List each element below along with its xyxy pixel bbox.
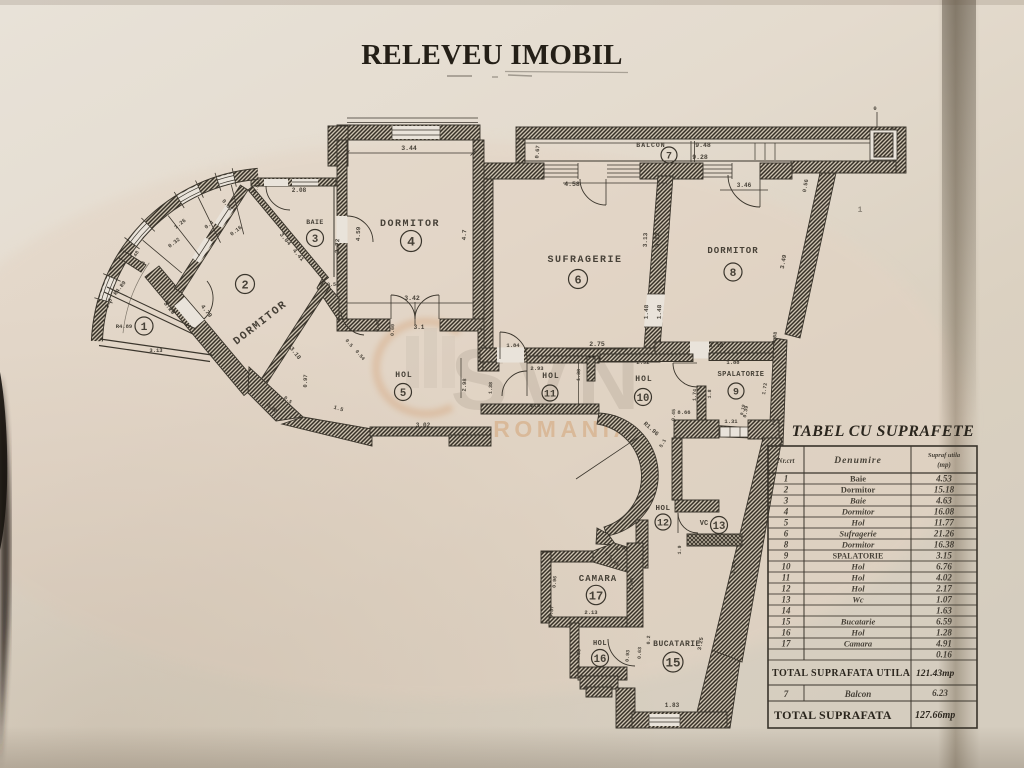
svg-text:1.48: 1.48 <box>643 304 651 319</box>
svg-text:1: 1 <box>771 420 775 427</box>
svg-text:5: 5 <box>400 388 406 400</box>
svg-text:6.23: 6.23 <box>932 688 948 698</box>
svg-text:7: 7 <box>784 689 789 699</box>
svg-text:4: 4 <box>407 235 415 250</box>
svg-text:0.96: 0.96 <box>551 576 558 588</box>
svg-text:8: 8 <box>784 540 789 550</box>
svg-text:2.98: 2.98 <box>461 378 468 392</box>
svg-text:R4.89: R4.89 <box>116 323 133 330</box>
svg-text:17: 17 <box>589 589 604 603</box>
svg-text:0.2: 0.2 <box>646 635 652 644</box>
svg-text:0: 0 <box>873 105 876 112</box>
svg-text:Hol: Hol <box>850 584 865 594</box>
svg-text:16: 16 <box>782 628 792 638</box>
svg-text:Wc: Wc <box>852 595 864 605</box>
svg-text:4.91: 4.91 <box>935 639 952 649</box>
svg-text:2.08: 2.08 <box>292 187 307 194</box>
svg-text:Bucatarie: Bucatarie <box>840 617 876 627</box>
svg-text:HOL: HOL <box>593 640 607 648</box>
svg-text:2.93: 2.93 <box>530 402 544 409</box>
svg-text:1.84: 1.84 <box>506 342 520 349</box>
svg-text:10: 10 <box>782 562 792 572</box>
svg-text:2: 2 <box>241 278 248 292</box>
svg-text:12: 12 <box>782 584 792 594</box>
svg-text:2.93: 2.93 <box>530 365 544 372</box>
svg-text:10: 10 <box>637 393 650 405</box>
svg-text:1.8: 1.8 <box>707 389 713 398</box>
svg-text:Camara: Camara <box>844 639 873 649</box>
svg-text:9.28: 9.28 <box>692 154 708 161</box>
svg-text:6: 6 <box>784 529 789 539</box>
svg-text:1.48: 1.48 <box>656 304 664 319</box>
svg-text:Baie: Baie <box>850 474 866 484</box>
svg-text:Hol: Hol <box>850 518 865 528</box>
svg-text:0.93: 0.93 <box>624 650 631 662</box>
svg-text:Dormitor: Dormitor <box>841 540 875 550</box>
svg-text:2.75: 2.75 <box>589 341 605 348</box>
svg-text:0.16: 0.16 <box>936 650 952 660</box>
svg-text:2.72: 2.72 <box>334 238 342 253</box>
svg-text:15: 15 <box>665 657 680 671</box>
svg-text:4.7: 4.7 <box>461 229 468 240</box>
svg-text:6.76: 6.76 <box>936 562 952 572</box>
svg-text:12: 12 <box>657 519 669 530</box>
svg-text:11.77: 11.77 <box>934 518 954 528</box>
svg-text:1.07: 1.07 <box>936 595 952 605</box>
svg-text:6: 6 <box>574 273 581 287</box>
svg-text:4.63: 4.63 <box>935 496 952 506</box>
svg-text:5: 5 <box>784 518 789 528</box>
svg-text:SUFRAGERIE: SUFRAGERIE <box>547 255 622 266</box>
svg-text:16: 16 <box>594 654 607 666</box>
svg-text:1.35: 1.35 <box>730 562 737 574</box>
svg-text:HOL: HOL <box>395 371 412 380</box>
svg-text:4.58: 4.58 <box>564 181 580 188</box>
svg-text:0.60: 0.60 <box>390 324 396 336</box>
svg-text:Hol: Hol <box>850 562 865 572</box>
svg-text:1.38: 1.38 <box>488 382 494 394</box>
svg-text:1.28: 1.28 <box>936 628 952 638</box>
svg-text:1.63: 1.63 <box>936 606 952 616</box>
svg-text:9.48: 9.48 <box>695 142 711 149</box>
svg-text:8.66: 8.66 <box>677 409 690 416</box>
svg-text:DORMITOR: DORMITOR <box>707 246 758 256</box>
svg-text:Dormitor: Dormitor <box>841 507 875 517</box>
svg-text:HOL: HOL <box>655 505 670 513</box>
svg-text:Nr.crt: Nr.crt <box>777 457 796 465</box>
svg-text:(mp): (mp) <box>937 461 951 469</box>
svg-text:CAMARA: CAMARA <box>579 574 617 584</box>
svg-text:1.83: 1.83 <box>665 702 680 709</box>
svg-text:3.12: 3.12 <box>709 342 724 349</box>
svg-text:HOL: HOL <box>635 375 652 384</box>
svg-text:1.95: 1.95 <box>628 578 635 590</box>
svg-text:3.13: 3.13 <box>654 232 662 247</box>
svg-text:Denumire: Denumire <box>833 456 882 466</box>
svg-text:SPALATORIE: SPALATORIE <box>717 371 764 379</box>
svg-text:127.66mp: 127.66mp <box>915 710 955 721</box>
svg-text:3.1: 3.1 <box>414 324 425 331</box>
svg-text:DORMITOR: DORMITOR <box>380 219 440 230</box>
svg-text:16.38: 16.38 <box>934 540 955 550</box>
svg-text:0.67: 0.67 <box>533 145 541 159</box>
svg-text:0.76: 0.76 <box>615 546 627 552</box>
svg-text:3.42: 3.42 <box>404 295 420 302</box>
svg-text:0.40: 0.40 <box>375 320 381 332</box>
svg-text:3.13: 3.13 <box>149 347 163 354</box>
svg-text:9: 9 <box>784 551 789 561</box>
svg-text:Balcon: Balcon <box>844 689 872 699</box>
svg-text:13: 13 <box>782 595 792 605</box>
svg-text:15.18: 15.18 <box>934 485 955 495</box>
svg-text:Sufragerie: Sufragerie <box>839 529 877 539</box>
svg-text:3.02: 3.02 <box>416 422 431 429</box>
svg-text:4.53: 4.53 <box>935 474 952 484</box>
svg-text:3: 3 <box>312 234 318 246</box>
svg-text:2.13: 2.13 <box>584 609 598 616</box>
svg-text:TOTAL SUPRAFATA UTILA: TOTAL SUPRAFATA UTILA <box>772 668 911 679</box>
svg-text:0.88: 0.88 <box>575 649 582 661</box>
svg-text:0.63: 0.63 <box>637 647 643 659</box>
svg-text:0.45: 0.45 <box>671 409 677 421</box>
svg-text:TABEL CU SUPRAFETE: TABEL CU SUPRAFETE <box>792 423 975 440</box>
svg-text:Baie: Baie <box>849 496 866 506</box>
svg-text:2.17: 2.17 <box>935 584 952 594</box>
svg-text:RELEVEU IMOBIL: RELEVEU IMOBIL <box>361 39 622 71</box>
svg-text:3.15: 3.15 <box>935 551 952 561</box>
svg-text:1.38: 1.38 <box>576 369 582 381</box>
svg-text:BAIE: BAIE <box>306 219 324 226</box>
svg-text:1: 1 <box>784 474 789 484</box>
svg-text:9: 9 <box>733 388 739 399</box>
svg-text:1: 1 <box>858 206 863 215</box>
svg-text:BALCON: BALCON <box>636 142 665 149</box>
svg-text:21.26: 21.26 <box>933 529 955 539</box>
svg-text:11: 11 <box>544 390 556 401</box>
svg-text:15: 15 <box>782 617 792 627</box>
svg-text:8: 8 <box>730 268 737 280</box>
svg-text:13: 13 <box>713 521 726 533</box>
svg-text:4.02: 4.02 <box>935 573 952 583</box>
svg-text:3.44: 3.44 <box>401 145 417 152</box>
svg-text:7: 7 <box>666 152 672 163</box>
svg-text:17: 17 <box>782 639 792 649</box>
svg-text:3.46: 3.46 <box>737 182 752 189</box>
svg-text:Hol: Hol <box>850 573 865 583</box>
svg-text:14: 14 <box>782 606 792 616</box>
svg-text:BUCATARIE: BUCATARIE <box>653 640 701 649</box>
svg-text:3.13: 3.13 <box>642 232 650 247</box>
svg-text:0.97: 0.97 <box>302 374 309 387</box>
svg-text:Dormitor: Dormitor <box>841 485 876 495</box>
svg-text:HOL: HOL <box>542 372 559 381</box>
svg-text:16.08: 16.08 <box>934 507 955 517</box>
svg-text:4.59: 4.59 <box>355 226 363 241</box>
svg-text:Hol: Hol <box>850 628 865 638</box>
svg-text:SPALATORIE: SPALATORIE <box>833 552 884 561</box>
svg-text:6.59: 6.59 <box>936 617 952 627</box>
svg-text:3: 3 <box>783 496 789 506</box>
svg-text:1.9: 1.9 <box>677 545 683 554</box>
svg-text:2: 2 <box>783 485 789 495</box>
svg-text:4: 4 <box>783 507 789 517</box>
svg-text:VC: VC <box>700 520 708 528</box>
svg-text:121.43mp: 121.43mp <box>916 669 955 679</box>
svg-text:TOTAL SUPRAFATA: TOTAL SUPRAFATA <box>774 708 892 722</box>
svg-text:Supraf utila: Supraf utila <box>928 452 961 459</box>
svg-text:11: 11 <box>782 573 791 583</box>
svg-text:1.31: 1.31 <box>724 418 738 425</box>
svg-text:1.74: 1.74 <box>692 389 698 401</box>
svg-text:0.57: 0.57 <box>548 606 555 618</box>
svg-text:1: 1 <box>141 322 148 334</box>
